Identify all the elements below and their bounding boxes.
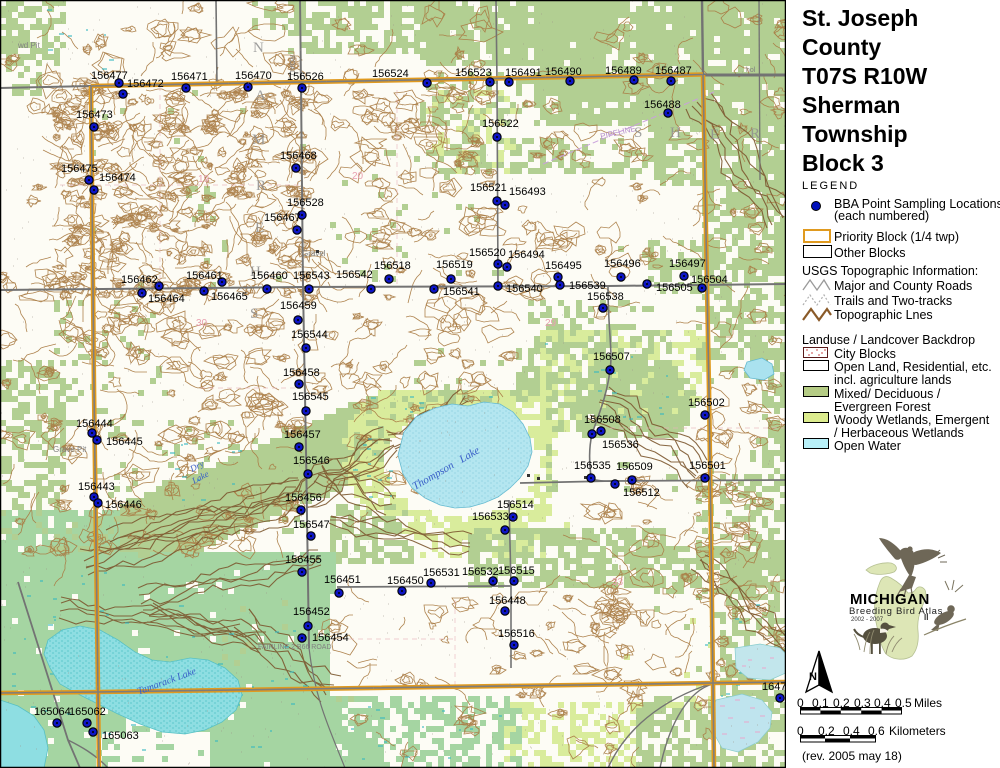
svg-text:156516: 156516 — [498, 628, 535, 640]
svg-text:156473: 156473 — [76, 109, 113, 121]
svg-text:156451: 156451 — [324, 574, 361, 586]
svg-text:S: S — [634, 125, 642, 141]
svg-text:156496: 156496 — [604, 258, 641, 270]
svg-text:156471: 156471 — [171, 71, 208, 83]
svg-text:156523: 156523 — [455, 67, 492, 79]
svg-text:156526: 156526 — [287, 71, 324, 83]
svg-text:156524: 156524 — [372, 68, 409, 80]
svg-text:20: 20 — [352, 171, 364, 182]
svg-text:156528: 156528 — [287, 197, 324, 209]
svg-text:29: 29 — [545, 318, 557, 329]
svg-text:156501: 156501 — [689, 460, 726, 472]
svg-text:19: 19 — [198, 174, 210, 185]
svg-text:156544: 156544 — [291, 329, 328, 341]
svg-text:156514: 156514 — [497, 499, 534, 511]
svg-text:156452: 156452 — [293, 606, 330, 618]
svg-text:156445: 156445 — [106, 436, 143, 448]
svg-text:156458: 156458 — [283, 367, 320, 379]
svg-text:156461: 156461 — [186, 270, 223, 282]
svg-text:156535: 156535 — [574, 460, 611, 472]
svg-text:156545: 156545 — [292, 391, 329, 403]
svg-text:156491: 156491 — [505, 67, 542, 79]
svg-text:156446: 156446 — [105, 499, 142, 511]
svg-text:33: 33 — [612, 577, 624, 588]
svg-text:156505: 156505 — [656, 282, 693, 294]
svg-text:N: N — [253, 40, 264, 56]
svg-text:156518: 156518 — [374, 260, 411, 272]
svg-text:wd Pit: wd Pit — [17, 41, 41, 50]
svg-text:hol: hol — [746, 67, 756, 74]
svg-text:156520: 156520 — [469, 247, 506, 259]
svg-text:165064: 165064 — [34, 706, 71, 718]
svg-text:156488: 156488 — [644, 99, 681, 111]
svg-text:156502: 156502 — [688, 397, 725, 409]
svg-text:156532: 156532 — [462, 566, 499, 578]
svg-text:S: S — [250, 306, 258, 322]
svg-text:156508: 156508 — [584, 414, 621, 426]
svg-text:156547: 156547 — [293, 519, 330, 531]
svg-text:156546: 156546 — [293, 455, 330, 467]
svg-text:156477: 156477 — [91, 70, 128, 82]
svg-text:156454: 156454 — [312, 632, 349, 644]
svg-text:156467: 156467 — [264, 212, 301, 224]
svg-text:156444: 156444 — [76, 418, 113, 430]
svg-text:FAIRLINE 2 B66 ROAD: FAIRLINE 2 B66 ROAD — [258, 644, 332, 651]
svg-text:156522: 156522 — [482, 118, 519, 130]
svg-text:156519: 156519 — [436, 259, 473, 271]
svg-text:156450: 156450 — [387, 575, 424, 587]
svg-text:156521: 156521 — [470, 182, 507, 194]
svg-text:156455: 156455 — [285, 554, 322, 566]
svg-text:156464: 156464 — [148, 293, 185, 305]
svg-text:156448: 156448 — [489, 595, 526, 607]
svg-text:156460: 156460 — [251, 270, 288, 282]
svg-text:156536: 156536 — [602, 439, 639, 451]
svg-text:156493: 156493 — [509, 186, 546, 198]
svg-text:156465: 156465 — [211, 291, 248, 303]
svg-text:E: E — [255, 220, 264, 236]
svg-text:156443: 156443 — [78, 481, 115, 493]
svg-text:156475: 156475 — [61, 163, 98, 175]
svg-text:156497: 156497 — [669, 258, 706, 270]
svg-text:156538: 156538 — [587, 291, 624, 303]
svg-text:A: A — [255, 88, 266, 104]
svg-text:156543: 156543 — [293, 270, 330, 282]
svg-text:156489: 156489 — [605, 65, 642, 77]
svg-text:E: E — [710, 127, 719, 143]
svg-text:165063: 165063 — [102, 730, 139, 742]
svg-text:156512: 156512 — [623, 487, 660, 499]
svg-text:156487: 156487 — [655, 65, 692, 77]
svg-text:156540: 156540 — [506, 283, 543, 295]
svg-text:156457: 156457 — [284, 429, 321, 441]
svg-text:156504: 156504 — [691, 274, 728, 286]
svg-text:156474: 156474 — [99, 172, 136, 184]
svg-text:156468: 156468 — [280, 150, 317, 162]
svg-text:16470: 16470 — [762, 681, 786, 693]
svg-text:156470: 156470 — [235, 70, 272, 82]
svg-text:156490: 156490 — [545, 66, 582, 78]
svg-text:30: 30 — [196, 318, 208, 329]
svg-text:M: M — [252, 132, 265, 148]
svg-text:156515: 156515 — [498, 565, 535, 577]
svg-text:156494: 156494 — [508, 249, 545, 261]
svg-text:156507: 156507 — [593, 351, 630, 363]
svg-text:156531: 156531 — [423, 567, 460, 579]
svg-text:156495: 156495 — [545, 260, 582, 272]
svg-text:Grave Pit: Grave Pit — [53, 445, 87, 454]
svg-text:Gravel: Gravel — [302, 249, 326, 258]
svg-text:156542: 156542 — [336, 269, 373, 281]
svg-text:R: R — [256, 178, 266, 194]
svg-text:156472: 156472 — [127, 78, 164, 90]
svg-text:156462: 156462 — [121, 274, 158, 286]
svg-text:156509: 156509 — [616, 461, 653, 473]
svg-text:156456: 156456 — [285, 492, 322, 504]
svg-text:156533: 156533 — [472, 511, 509, 523]
svg-text:R: R — [750, 126, 760, 142]
svg-text:N: N — [809, 671, 817, 683]
svg-text:H: H — [670, 125, 681, 141]
svg-text:165062: 165062 — [69, 706, 106, 718]
